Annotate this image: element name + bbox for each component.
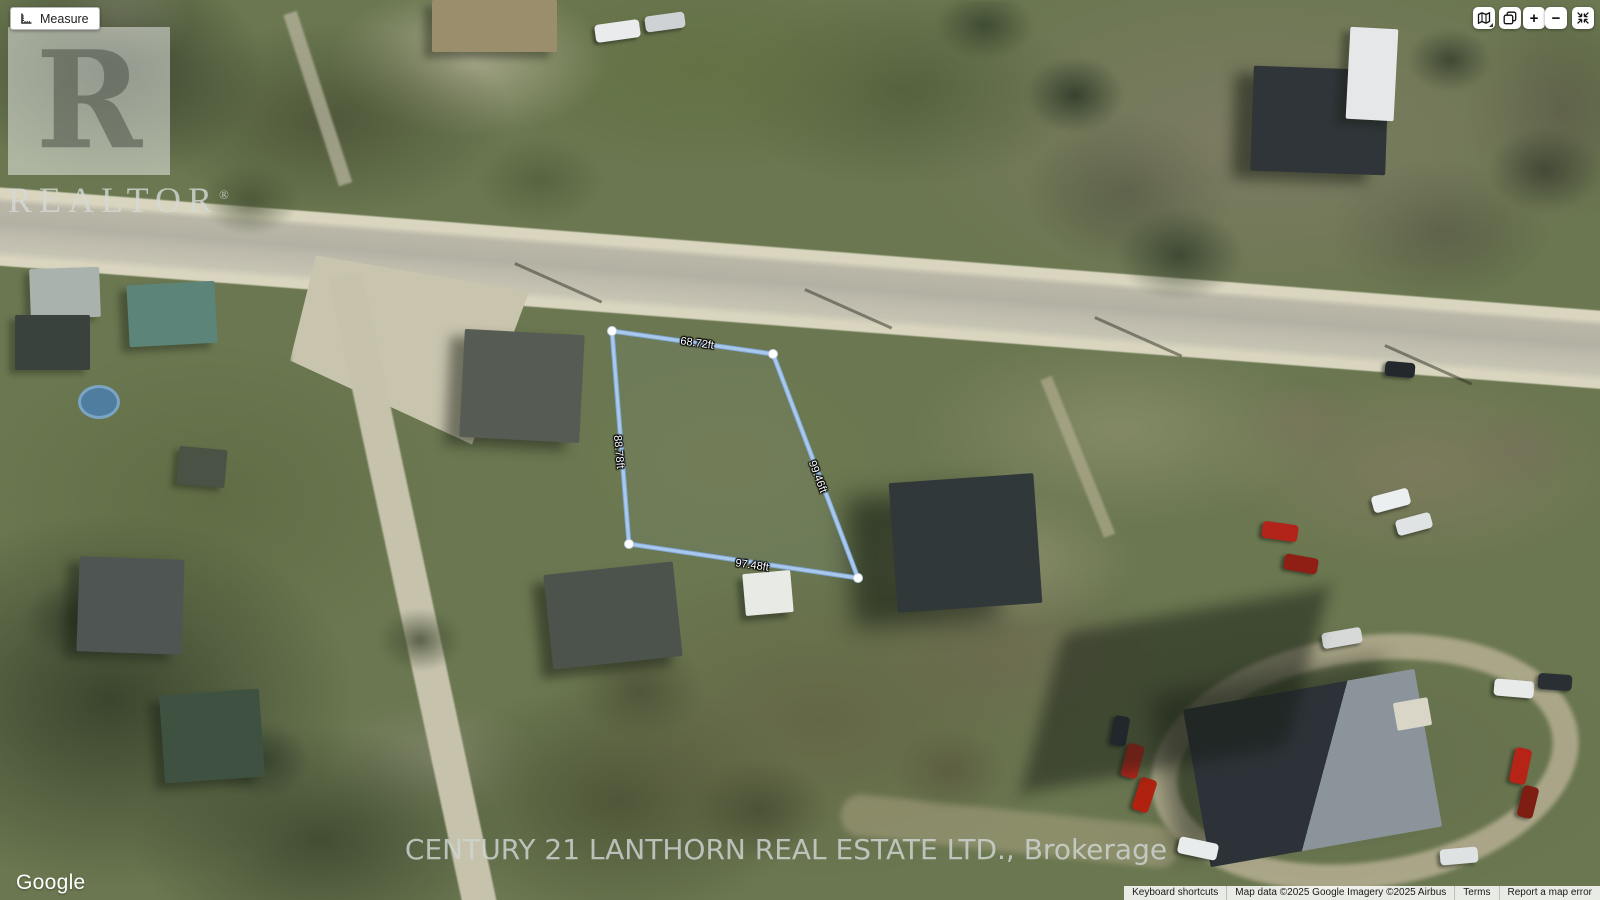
zoom-out-button[interactable]: − (1545, 7, 1567, 29)
report-map-error-link[interactable]: Report a map error (1499, 886, 1600, 900)
building (742, 570, 793, 616)
attribution-bar: Keyboard shortcuts Map data ©2025 Google… (1124, 886, 1600, 900)
swimming-pool (78, 385, 120, 419)
building (889, 473, 1043, 613)
layers-icon (1503, 11, 1517, 25)
building (432, 0, 557, 52)
map-canvas[interactable]: 68.72ft99.46ft97.48ft88.78ft R REALTOR® … (0, 0, 1600, 900)
building (459, 329, 584, 443)
car (1439, 846, 1478, 865)
building (15, 315, 90, 370)
building (159, 689, 265, 784)
building (1346, 27, 1399, 121)
building (176, 446, 227, 488)
map-data-attribution: Map data ©2025 Google Imagery ©2025 Airb… (1226, 886, 1454, 900)
overlay-layers-button[interactable] (1499, 7, 1521, 29)
car (1493, 678, 1534, 698)
building (543, 561, 682, 669)
measure-button-label: Measure (40, 12, 89, 26)
collapse-icon (1576, 11, 1590, 25)
map-type-button[interactable] (1473, 7, 1495, 29)
zoom-in-button[interactable]: + (1523, 7, 1545, 29)
building (126, 281, 217, 348)
car (1384, 361, 1415, 379)
measure-button[interactable]: Measure (10, 7, 100, 30)
ruler-icon (19, 12, 33, 26)
minus-icon: − (1552, 11, 1561, 26)
building (76, 556, 184, 655)
map-type-expand-arrow (1489, 23, 1493, 27)
terms-link[interactable]: Terms (1454, 886, 1498, 900)
car (1537, 673, 1572, 691)
plus-icon: + (1530, 11, 1539, 26)
building (1393, 697, 1432, 731)
google-logo[interactable]: Google (16, 871, 86, 895)
building (29, 267, 101, 319)
keyboard-shortcuts-link[interactable]: Keyboard shortcuts (1124, 886, 1226, 900)
collapse-fullscreen-button[interactable] (1572, 7, 1594, 29)
